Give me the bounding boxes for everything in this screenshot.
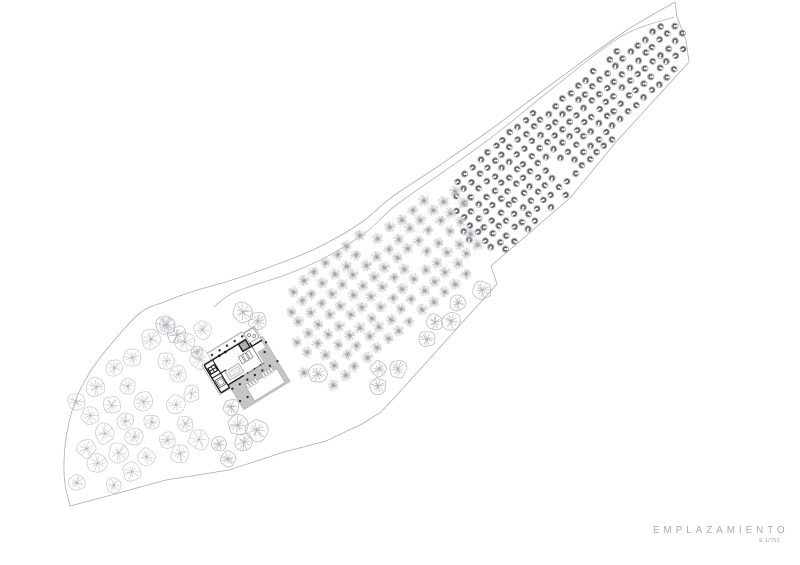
svg-text:EMPLAZAMIENTO: EMPLAZAMIENTO xyxy=(653,525,789,536)
svg-text:E 1/750: E 1/750 xyxy=(759,538,780,544)
